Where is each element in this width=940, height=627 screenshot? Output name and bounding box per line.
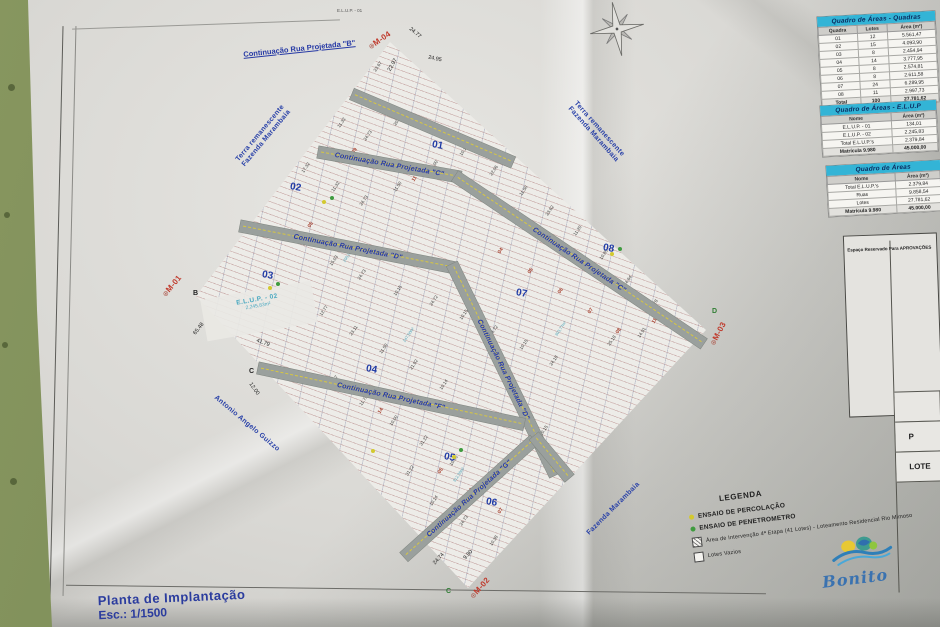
title-strip-row	[894, 390, 940, 422]
boundary-label: Terra remanescenteFazenda Marambaia	[566, 100, 626, 164]
edge-dimension: 12.00	[247, 382, 260, 397]
survey-marker: ⊕M-03	[703, 318, 731, 349]
quadra-number: 01	[431, 139, 444, 152]
boundary-label: Terra remanescenteFazenda Marambaia	[235, 103, 293, 168]
corner-point: C	[249, 368, 254, 375]
ensaio-penetrometro-dot	[459, 448, 463, 452]
dot-green-icon	[690, 526, 696, 532]
table-quadro-areas-quadras: Quadro de Áreas - Quadras QuadraLotesÁre…	[817, 11, 940, 108]
desk-spot	[4, 212, 10, 218]
ensaio-penetrometro-dot	[330, 196, 334, 200]
quadra-number: 04	[365, 363, 378, 376]
ensaio-percolacao-dot	[371, 449, 375, 453]
table-cell: 45.000,00	[897, 203, 940, 213]
table-body: NomeÁrea (m²)E.L.U.P. - 01134,01E.L.U.P.…	[821, 110, 939, 157]
table-quadro-areas-geral: Quadro de Áreas NomeÁrea (m²)Total E.L.U…	[826, 160, 940, 217]
quadra-number: 06	[485, 496, 498, 509]
table-body: QuadraLotesÁrea (m²)01125.561,4702154.09…	[818, 21, 940, 108]
marker-id: M-02	[472, 576, 492, 596]
title-strip-row: P	[895, 420, 940, 452]
ensaio-percolacao-dot	[268, 286, 272, 290]
marker-id: M-01	[164, 273, 183, 294]
table-body: NomeÁrea (m²)Total E.L.U.P.'s2.379,84Rua…	[827, 170, 940, 217]
quadra-number: 03	[261, 269, 274, 282]
paper-sheet: Continuação Rua Projetada "B" E.L.U.P. -…	[0, 0, 940, 627]
edge-dimension: 24.77	[408, 26, 422, 39]
survey-marker: ⊕M-01	[156, 270, 186, 301]
street-label-rua-b: Continuação Rua Projetada "B"	[243, 38, 356, 59]
box-empty-icon	[693, 551, 704, 562]
table-quadro-areas-elup: Quadro de Áreas - E.L.U.P NomeÁrea (m²)E…	[820, 100, 939, 157]
elup-01-label: E.L.U.P. - 01	[337, 8, 362, 13]
boundary-label: Antonio Angelo Guizzo	[212, 394, 281, 454]
ensaio-penetrometro-dot	[618, 247, 622, 251]
quadra-number: 07	[515, 287, 528, 300]
legend-item-label: Lotes Vazios	[708, 549, 742, 559]
photo-of-site-plan: Continuação Rua Projetada "B" E.L.U.P. -…	[0, 0, 940, 627]
edge-dimension: 24.95	[428, 55, 443, 64]
corner-point: D	[712, 308, 717, 315]
edge-dimension: 65.48	[192, 322, 205, 337]
ensaio-percolacao-dot	[610, 252, 614, 256]
corner-point: C	[446, 588, 451, 595]
corner-point: B	[193, 290, 198, 297]
box-hatched-icon	[692, 537, 703, 548]
ensaio-penetrometro-dot	[276, 282, 280, 286]
ensaio-percolacao-dot	[322, 200, 326, 204]
desk-spot	[10, 478, 17, 485]
marker-id: M-03	[711, 320, 728, 341]
desk-spot	[2, 342, 8, 348]
quadra-number: 02	[289, 181, 302, 194]
dot-yellow-icon	[689, 514, 695, 520]
table-cell: 45.000,00	[892, 142, 938, 152]
desk-spot	[8, 84, 15, 91]
boundary-label: Fazenda Marambaia	[586, 481, 642, 537]
ensaio-percolacao-dot	[452, 455, 456, 459]
